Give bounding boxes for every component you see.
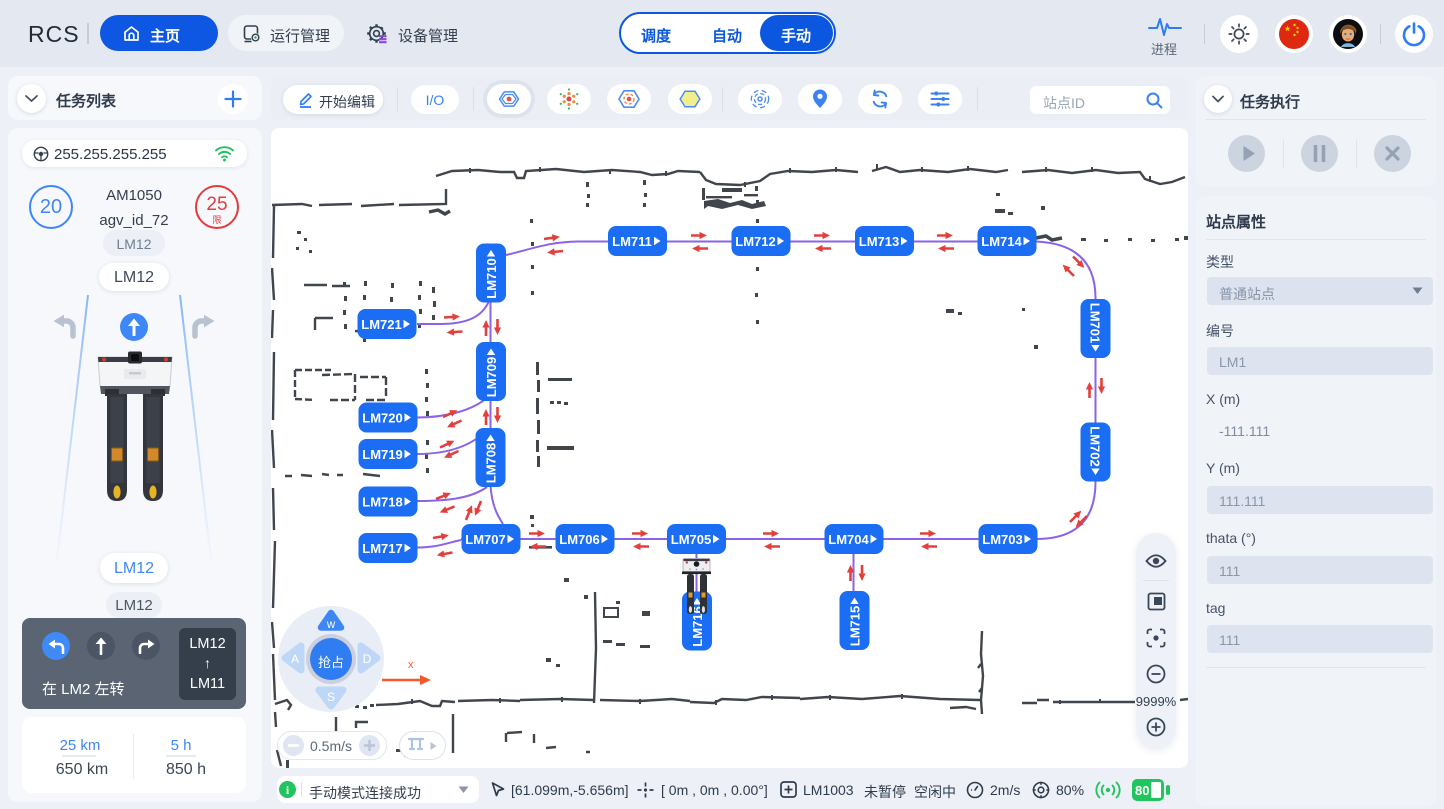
svg-text:LM703: LM703 (982, 532, 1022, 547)
svg-text:LM715: LM715 (847, 606, 862, 646)
svg-text:w: w (326, 619, 336, 631)
svg-text:LM720: LM720 (362, 410, 402, 425)
svg-text:LM714: LM714 (981, 234, 1022, 249)
svg-text:LM705: LM705 (671, 532, 711, 547)
svg-text:LM719: LM719 (362, 447, 402, 462)
svg-text:LM710: LM710 (484, 258, 499, 298)
svg-text:LM713: LM713 (859, 234, 899, 249)
svg-text:x: x (408, 659, 414, 671)
svg-text:LM709: LM709 (484, 357, 499, 397)
svg-text:LM706: LM706 (559, 532, 599, 547)
svg-text:LM704: LM704 (828, 532, 869, 547)
svg-text:LM711: LM711 (612, 234, 652, 249)
svg-text:S: S (327, 690, 335, 704)
svg-text:LM717: LM717 (362, 541, 402, 556)
svg-text:D: D (363, 652, 372, 666)
svg-text:LM712: LM712 (735, 234, 775, 249)
svg-text:A: A (291, 652, 299, 666)
svg-text:LM708: LM708 (483, 443, 498, 483)
svg-text:LM721: LM721 (361, 317, 401, 332)
svg-text:LM702: LM702 (1088, 426, 1103, 466)
svg-text:LM718: LM718 (362, 494, 402, 509)
svg-text:LM707: LM707 (465, 532, 505, 547)
svg-text:LM701: LM701 (1088, 303, 1103, 343)
